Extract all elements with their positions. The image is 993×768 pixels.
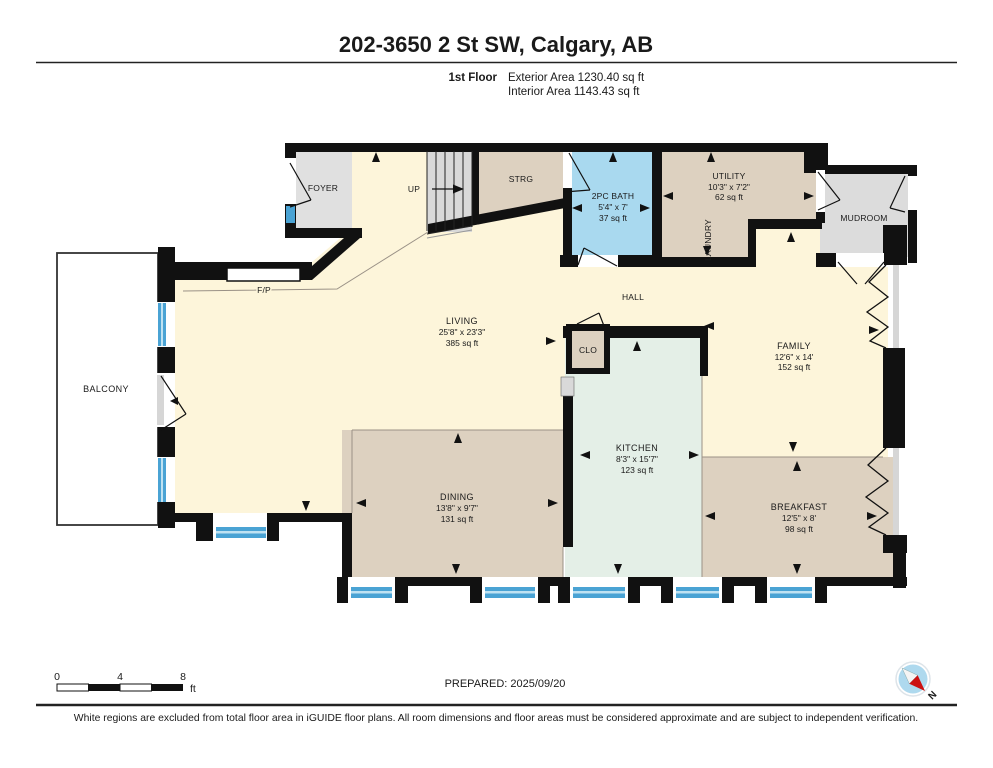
svg-text:37 sq ft: 37 sq ft	[599, 213, 628, 223]
label-family: FAMILY 12'6" x 14' 152 sq ft	[775, 341, 814, 372]
compass: N	[896, 662, 939, 702]
label-laundry: LAUNDRY	[703, 219, 713, 261]
svg-text:152 sq ft: 152 sq ft	[778, 362, 811, 372]
disclaimer: White regions are excluded from total fl…	[74, 713, 918, 724]
exterior-area: Exterior Area 1230.40 sq ft	[508, 72, 645, 84]
label-strg: STRG	[509, 174, 533, 184]
page-title: 202-3650 2 St SW, Calgary, AB	[339, 32, 653, 57]
svg-text:12'5" x 8': 12'5" x 8'	[782, 513, 817, 523]
scale-tick-0: 0	[54, 671, 60, 683]
label-dining: DINING 13'8" x 9'7" 131 sq ft	[436, 492, 478, 524]
svg-text:LIVING: LIVING	[446, 316, 478, 326]
family-top-fill	[752, 228, 822, 270]
svg-text:131 sq ft: 131 sq ft	[441, 514, 474, 524]
svg-text:2PC BATH: 2PC BATH	[592, 191, 635, 201]
label-balcony: BALCONY	[83, 384, 129, 394]
svg-text:5'4" x 7': 5'4" x 7'	[598, 202, 628, 212]
scale-unit: ft	[190, 683, 196, 695]
svg-text:98 sq ft: 98 sq ft	[785, 524, 814, 534]
svg-text:12'6" x 14': 12'6" x 14'	[775, 352, 814, 362]
compass-north-label: N	[926, 689, 939, 702]
svg-text:385 sq ft: 385 sq ft	[446, 338, 479, 348]
svg-text:13'8" x 9'7": 13'8" x 9'7"	[436, 503, 478, 513]
svg-text:DINING: DINING	[440, 492, 474, 502]
svg-text:BREAKFAST: BREAKFAST	[771, 502, 828, 512]
fireplace-niche	[227, 268, 300, 281]
header: 202-3650 2 St SW, Calgary, AB 1st Floor …	[36, 32, 957, 98]
svg-text:KITCHEN: KITCHEN	[616, 443, 658, 453]
label-foyer: FOYER	[308, 183, 338, 193]
floorplan-page: 202-3650 2 St SW, Calgary, AB 1st Floor …	[0, 0, 993, 768]
label-clo: CLO	[579, 345, 597, 355]
prepared-date: PREPARED: 2025/09/20	[445, 678, 566, 690]
scale-tick-8: 8	[180, 671, 186, 683]
svg-text:25'8" x 23'3": 25'8" x 23'3"	[439, 327, 486, 337]
floor-label: 1st Floor	[448, 72, 497, 84]
svg-text:FAMILY: FAMILY	[777, 341, 811, 351]
interior-area: Interior Area 1143.43 sq ft	[508, 86, 640, 98]
label-hall: HALL	[622, 292, 644, 302]
svg-text:123 sq ft: 123 sq ft	[621, 465, 654, 475]
label-mudroom: MUDROOM	[840, 213, 887, 223]
footer: 0 4 8 ft PREPARED: 2025/09/20 N White re…	[36, 662, 957, 724]
scale-bar: 0 4 8 ft	[54, 671, 196, 695]
floorplan-svg: 202-3650 2 St SW, Calgary, AB 1st Floor …	[0, 0, 993, 768]
kitchen-appliance	[561, 377, 574, 396]
label-kitchen: KITCHEN 8'3" x 15'7" 123 sq ft	[616, 443, 658, 475]
label-up: UP	[408, 184, 420, 194]
svg-text:UTILITY: UTILITY	[712, 171, 745, 181]
label-fireplace: F/P	[257, 285, 271, 295]
svg-text:8'3" x 15'7": 8'3" x 15'7"	[616, 454, 658, 464]
scale-tick-4: 4	[117, 671, 123, 683]
svg-text:10'3" x 7'2": 10'3" x 7'2"	[708, 182, 750, 192]
svg-text:62 sq ft: 62 sq ft	[715, 192, 744, 202]
